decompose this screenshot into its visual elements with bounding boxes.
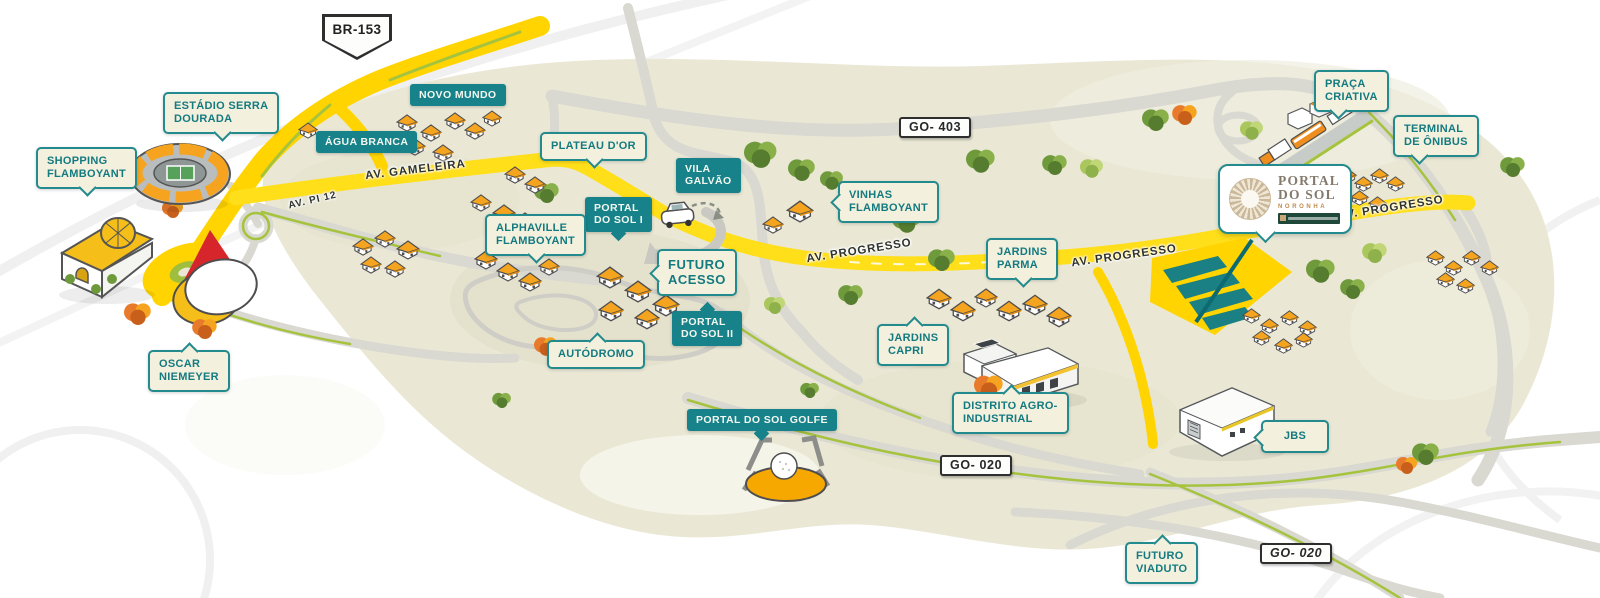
map-canvas: BR-153ESTÁDIO SERRA DOURADASHOPPING FLAM… [0, 0, 1600, 598]
developer-mark-icon [1280, 215, 1286, 221]
portal-do-sol-rosette-icon [1229, 178, 1271, 220]
logo-line1: PORTAL [1278, 174, 1340, 188]
developer-signature-bar [1278, 213, 1340, 224]
logo-line3: NORONHA [1278, 204, 1340, 210]
portal-do-sol-logo-callout: PORTAL DO SOL NORONHA [1218, 164, 1352, 234]
logo-line2: DO SOL [1278, 188, 1340, 202]
map-illustration [0, 0, 1600, 598]
stadium-illustration [130, 144, 230, 212]
